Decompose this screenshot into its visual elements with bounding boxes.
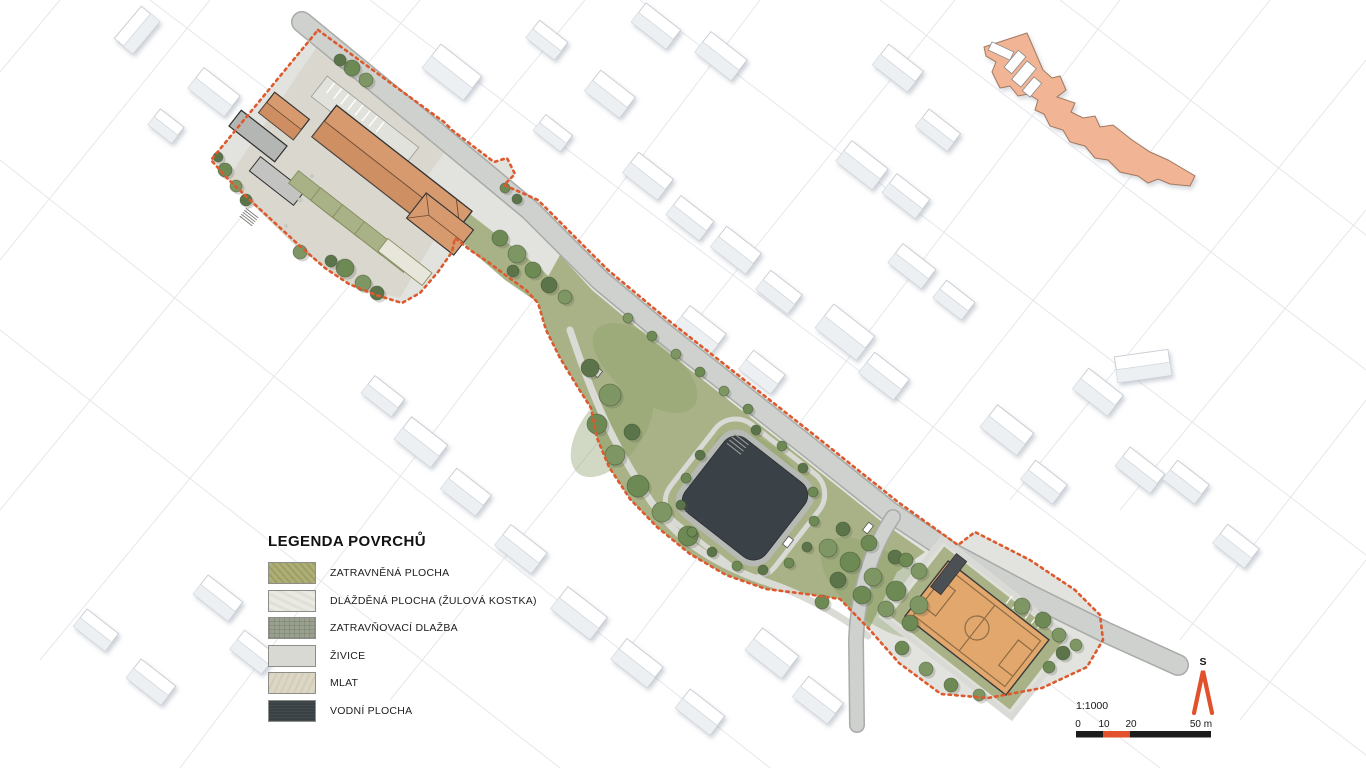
tree-icon	[719, 386, 729, 396]
legend-item-mlat: MLAT	[268, 672, 537, 694]
background-building	[745, 628, 798, 678]
background-building	[695, 32, 747, 81]
tree-icon	[218, 163, 232, 177]
tree-icon	[802, 542, 812, 552]
background-building	[1163, 460, 1209, 504]
surface-legend: LEGENDA POVRCHŮ ZATRAVNĚNÁ PLOCHA DLÁŽDĚ…	[268, 533, 537, 727]
legend-label: ŽIVICE	[330, 650, 365, 662]
tree-icon	[895, 641, 909, 655]
tree-icon	[334, 54, 346, 66]
tree-icon	[830, 572, 846, 588]
tree-icon	[784, 558, 794, 568]
tree-icon	[647, 331, 657, 341]
legend-item-grassed-area: ZATRAVNĚNÁ PLOCHA	[268, 562, 537, 584]
north-arrow: S	[1194, 656, 1212, 713]
background-building	[585, 70, 636, 118]
scale-tick-0: 0	[1075, 719, 1081, 730]
scale-tick-50m: 50 m	[1190, 719, 1212, 730]
tree-icon	[581, 359, 599, 377]
tree-icon	[652, 502, 672, 522]
background-building	[933, 280, 975, 320]
background-building	[631, 3, 680, 49]
tree-icon	[853, 586, 871, 604]
legend-label: ZATRAVNĚNÁ PLOCHA	[330, 567, 449, 579]
background-building	[859, 352, 910, 400]
tree-icon	[623, 313, 633, 323]
tree-icon	[624, 424, 640, 440]
tree-icon	[919, 662, 933, 676]
background-building	[666, 196, 714, 241]
background-building	[1114, 349, 1171, 382]
tree-icon	[1070, 639, 1082, 651]
tree-icon	[732, 561, 742, 571]
scale-bar-segment	[1076, 731, 1103, 738]
tree-icon	[325, 255, 337, 267]
background-building	[193, 575, 242, 621]
background-building	[711, 226, 762, 274]
legend-item-paved-granite: DLÁŽDĚNÁ PLOCHA (ŽULOVÁ KOSTKA)	[268, 590, 537, 612]
background-building	[756, 270, 802, 314]
scale-ratio: 1:1000	[1076, 700, 1108, 712]
scale-tick-20: 20	[1125, 719, 1137, 730]
tree-icon	[798, 463, 808, 473]
tree-icon	[695, 450, 705, 460]
background-building	[361, 376, 404, 417]
tree-icon	[599, 384, 621, 406]
tree-icon	[836, 522, 850, 536]
background-building	[836, 141, 888, 190]
tree-icon	[525, 262, 541, 278]
legend-swatch-paved-granite	[268, 590, 316, 612]
legend-swatch-asphalt	[268, 645, 316, 667]
legend-label: ZATRAVŇOVACÍ DLAŽBA	[330, 622, 458, 634]
tree-icon	[687, 527, 697, 537]
tree-icon	[1035, 612, 1051, 628]
tree-icon	[359, 73, 373, 87]
background-building	[114, 6, 159, 54]
background-building	[793, 676, 844, 724]
tree-icon	[777, 441, 787, 451]
tree-icon	[840, 552, 860, 572]
tree-icon	[751, 425, 761, 435]
tree-icon	[671, 349, 681, 359]
background-building	[533, 115, 572, 152]
legend-swatch-grassed-area	[268, 562, 316, 584]
tree-icon	[558, 290, 572, 304]
tree-icon	[758, 565, 768, 575]
tree-icon	[541, 277, 557, 293]
background-building	[441, 468, 492, 516]
tree-icon	[864, 568, 882, 586]
tree-icon	[899, 553, 913, 567]
background-building	[126, 659, 175, 705]
tree-icon	[605, 445, 625, 465]
background-building	[915, 109, 960, 151]
background-building	[188, 68, 240, 117]
tree-icon	[355, 275, 371, 291]
legend-label: VODNÍ PLOCHA	[330, 705, 412, 717]
tree-icon	[492, 230, 508, 246]
tree-icon	[681, 473, 691, 483]
background-building	[675, 689, 724, 735]
background-building	[873, 44, 924, 92]
tree-icon	[1056, 646, 1070, 660]
scale-tick-10: 10	[1098, 719, 1110, 730]
legend-title: LEGENDA POVRCHŮ	[268, 533, 537, 550]
background-building	[882, 174, 930, 219]
background-building	[148, 109, 184, 143]
farm-stairs	[240, 208, 259, 226]
tree-icon	[910, 596, 928, 614]
background-building	[526, 20, 568, 60]
north-label: S	[1199, 656, 1206, 668]
tree-icon	[676, 500, 686, 510]
background-building	[551, 587, 608, 640]
tree-icon	[878, 601, 894, 617]
background-building	[623, 152, 674, 200]
tree-icon	[1014, 598, 1030, 614]
tree-icon	[973, 689, 985, 701]
background-building	[980, 405, 1033, 455]
tree-icon	[627, 475, 649, 497]
legend-swatch-water-surface	[268, 700, 316, 722]
site-plan-page: { "legend": { "title": "LEGENDA POVRCHŮ"…	[0, 0, 1366, 768]
keyplan	[984, 33, 1195, 186]
legend-label: DLÁŽDĚNÁ PLOCHA (ŽULOVÁ KOSTKA)	[330, 595, 537, 607]
scale-bar-segment	[1103, 731, 1130, 738]
background-building	[73, 609, 118, 651]
legend-swatch-mlat	[268, 672, 316, 694]
tree-icon	[695, 367, 705, 377]
legend-label: MLAT	[330, 677, 358, 689]
tree-icon	[743, 404, 753, 414]
tree-icon	[512, 194, 522, 204]
tree-icon	[809, 516, 819, 526]
background-building	[1073, 368, 1124, 416]
tree-icon	[1052, 628, 1066, 642]
background-building	[422, 44, 481, 100]
background-building	[1213, 524, 1259, 568]
background-building	[815, 304, 874, 360]
background-building	[1021, 460, 1067, 504]
legend-swatch-grass-paving	[268, 617, 316, 639]
tree-icon	[808, 487, 818, 497]
tree-icon	[886, 581, 906, 601]
tree-icon	[707, 547, 717, 557]
scale-bar-segment	[1130, 731, 1211, 738]
tree-icon	[587, 414, 607, 434]
tree-icon	[508, 245, 526, 263]
tree-icon	[861, 535, 877, 551]
legend-item-water-surface: VODNÍ PLOCHA	[268, 700, 537, 722]
tree-icon	[944, 678, 958, 692]
tree-icon	[507, 265, 519, 277]
site-plan-canvas: S 1:1000 0 10 20 50 m	[0, 0, 1366, 768]
tree-icon	[1043, 661, 1055, 673]
legend-item-grass-paving: ZATRAVŇOVACÍ DLAŽBA	[268, 617, 537, 639]
tree-icon	[819, 539, 837, 557]
background-building	[611, 639, 663, 688]
legend-item-asphalt: ŽIVICE	[268, 645, 537, 667]
background-building	[888, 244, 936, 289]
tree-icon	[902, 615, 918, 631]
